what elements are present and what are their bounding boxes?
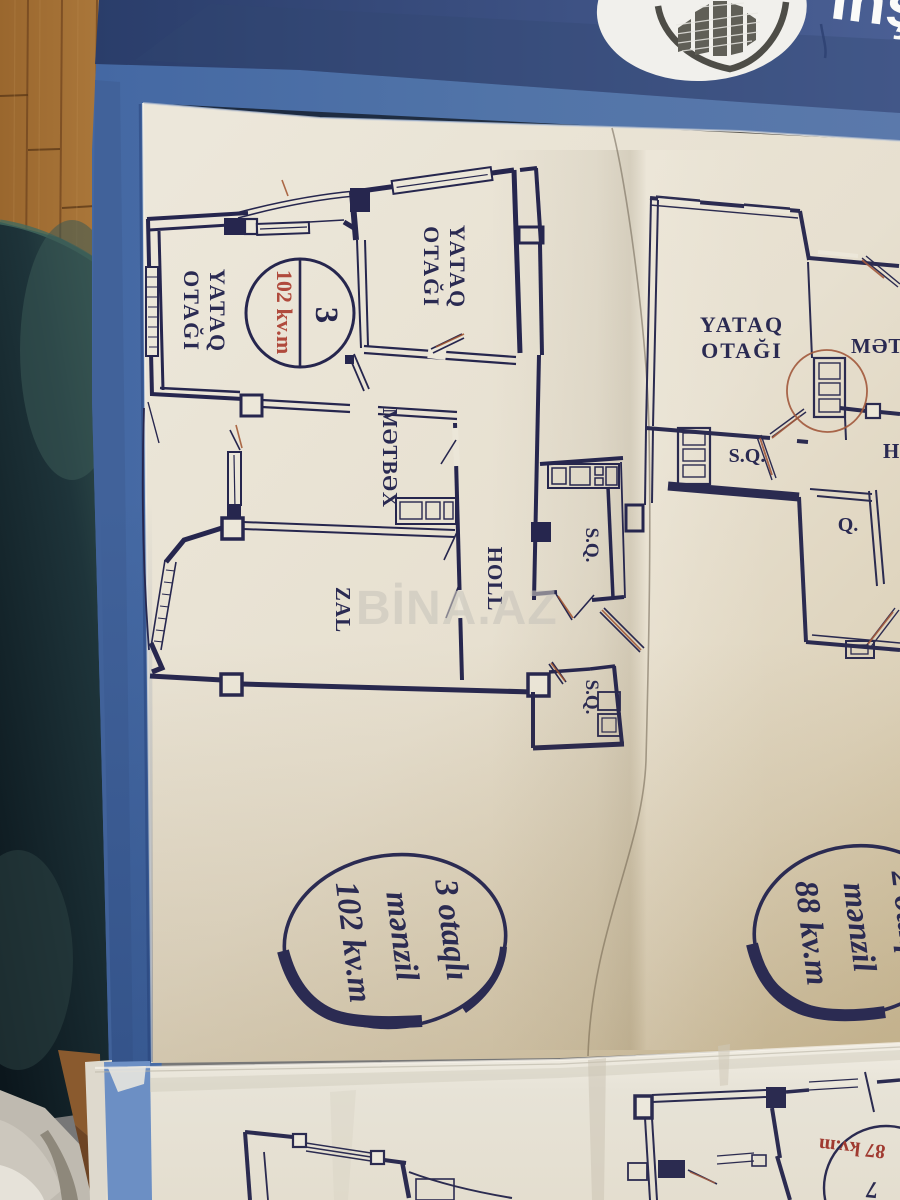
svg-text:YATAQ: YATAQ: [700, 312, 784, 337]
svg-text:BİNA.AZ: BİNA.AZ: [356, 582, 558, 635]
svg-text:S.Q.: S.Q.: [581, 528, 602, 563]
svg-text:OTAĞI: OTAĞI: [419, 226, 444, 308]
svg-text:102 kv.m: 102 kv.m: [272, 270, 297, 354]
svg-text:MƏTBƏX: MƏTBƏX: [378, 408, 402, 508]
svg-text:OTAĞI: OTAĞI: [179, 270, 204, 352]
svg-text:HOL: HOL: [883, 439, 900, 463]
svg-text:S.Q.: S.Q.: [729, 445, 766, 467]
svg-text:YATAQ: YATAQ: [445, 225, 470, 309]
svg-text:OTAĞI: OTAĞI: [701, 338, 783, 363]
svg-text:Q.: Q.: [838, 514, 859, 536]
svg-text:MƏTB: MƏTB: [851, 334, 900, 358]
svg-text:3: 3: [308, 307, 344, 324]
svg-text:YATAQ: YATAQ: [205, 269, 230, 353]
svg-text:ZAL: ZAL: [331, 587, 355, 633]
